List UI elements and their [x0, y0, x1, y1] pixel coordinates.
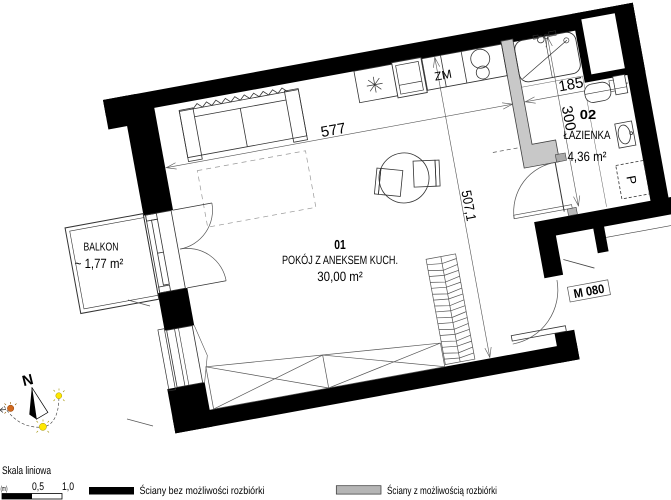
svg-text:POKÓJ Z ANEKSEM KUCH.: POKÓJ Z ANEKSEM KUCH.	[282, 253, 398, 267]
svg-text:ŁAZIENKA: ŁAZIENKA	[564, 128, 611, 142]
svg-text:Ściany bez możliwości rozbiórk: Ściany bez możliwości rozbiórki	[140, 484, 265, 497]
svg-text:~ 1,77 m²: ~ 1,77 m²	[75, 256, 124, 271]
svg-text:01: 01	[334, 237, 346, 252]
svg-text:1,0: 1,0	[62, 481, 74, 493]
svg-text:0,5: 0,5	[32, 481, 44, 493]
svg-text:(m): (m)	[1, 484, 8, 493]
svg-text:Ściany z możliwością rozbiórki: Ściany z możliwością rozbiórki	[387, 484, 497, 497]
svg-text:30,00 m²: 30,00 m²	[317, 269, 363, 284]
svg-text:Skala liniowa: Skala liniowa	[2, 465, 52, 477]
svg-text:N: N	[20, 371, 35, 390]
svg-text:4,36 m²: 4,36 m²	[568, 149, 607, 164]
svg-text:BALKON: BALKON	[84, 242, 119, 254]
svg-text:02: 02	[580, 107, 596, 122]
